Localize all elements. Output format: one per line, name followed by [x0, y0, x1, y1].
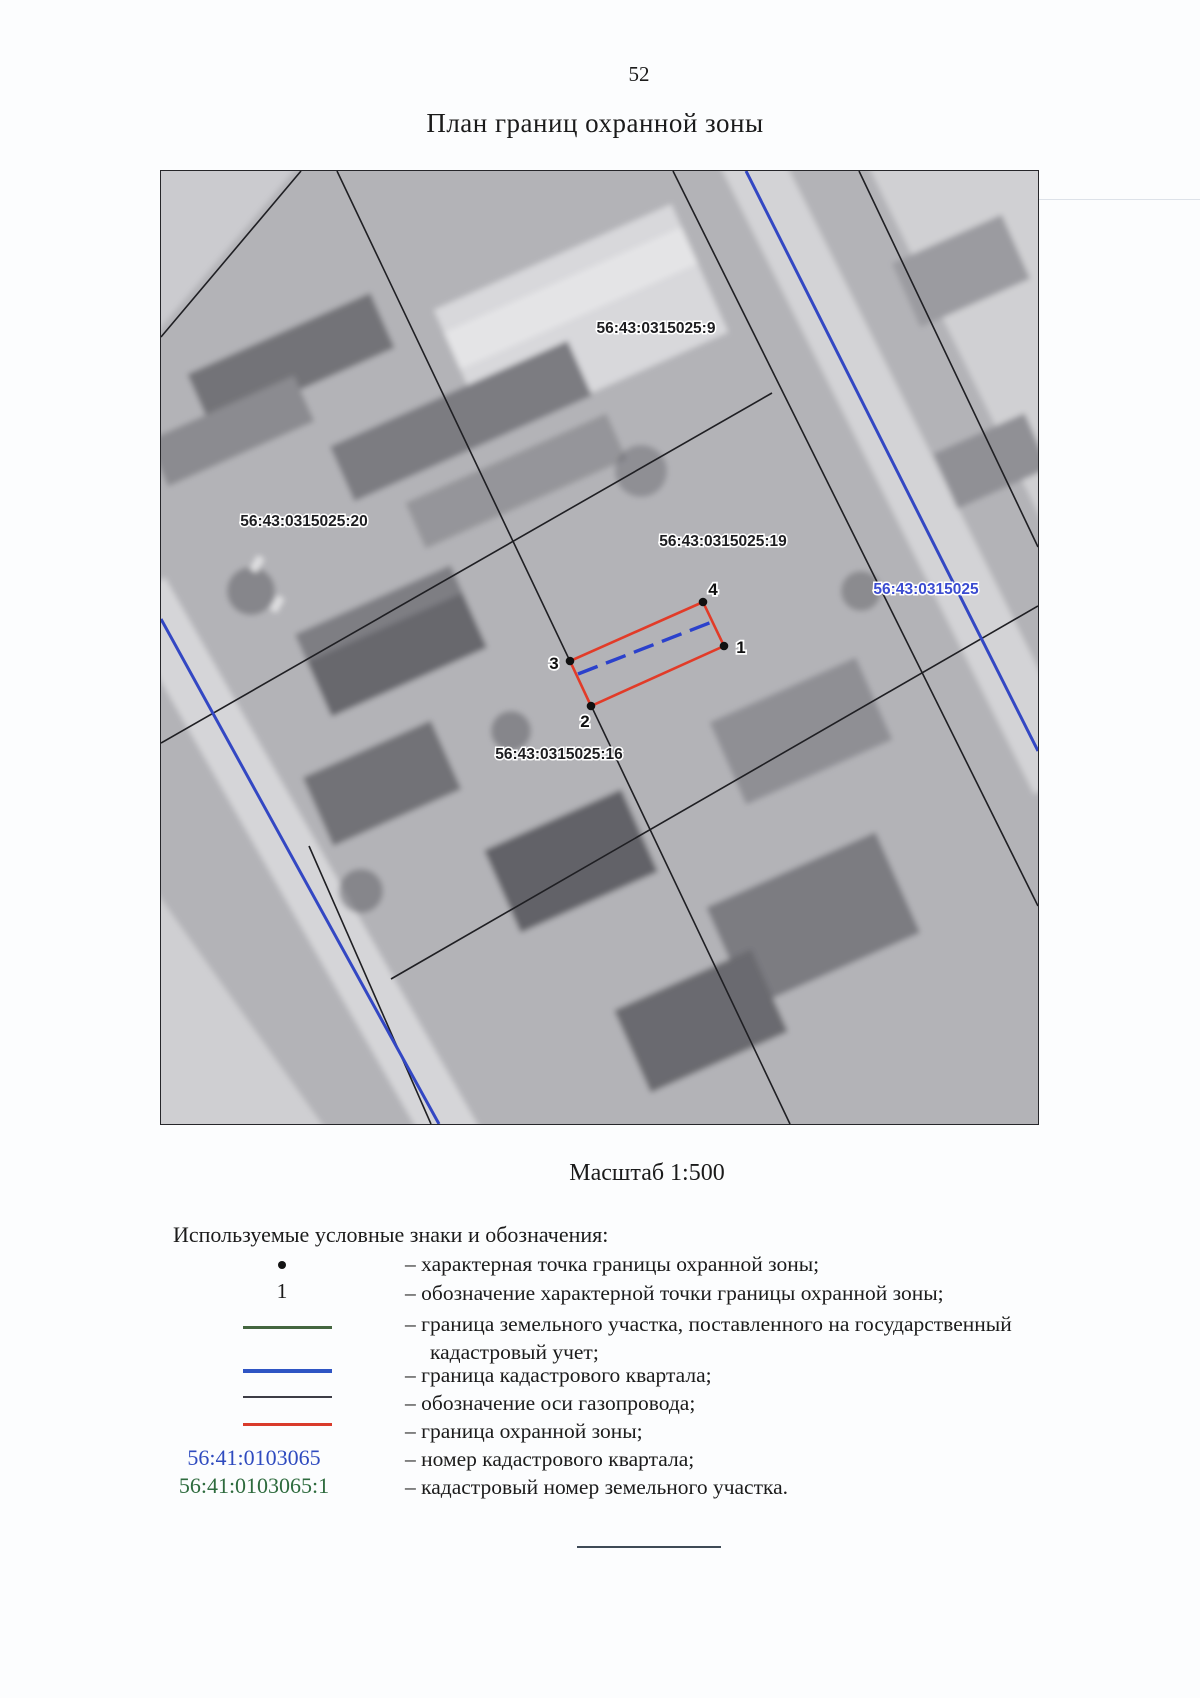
legend-symbol-protection-zone-line [243, 1423, 332, 1426]
legend-symbol-cadastral-quarter-number: 56:41:0103065 [168, 1445, 340, 1471]
legend-row-text: – обозначение характерной точки границы … [405, 1281, 944, 1306]
legend-row-text: – кадастровый номер земельного участка. [405, 1475, 788, 1500]
quarter-label: 56:43:0315025 [873, 581, 979, 598]
document-page: 52 План границ охранной зоны [0, 0, 1200, 1698]
legend-symbol-gas-pipeline-axis-line [243, 1396, 332, 1398]
legend-symbol-parcel-cadastral-number: 56:41:0103065:1 [168, 1473, 340, 1499]
page-faint-rule [1039, 199, 1200, 200]
parcel-label-9: 56:43:0315025:9 [597, 320, 716, 337]
boundary-point-1-dot [720, 642, 729, 651]
legend-symbol-cadastral-quarter-line [243, 1369, 332, 1373]
protection-zone-plan-map: 4 1 2 3 56:43:0315025:9 56:43:0315025:20… [160, 170, 1039, 1125]
legend-row-text: – граница кадастрового квартала; [405, 1363, 712, 1388]
legend-row-text: – обозначение оси газопровода; [405, 1391, 695, 1416]
legend-row-text: – характерная точка границы охранной зон… [405, 1252, 819, 1277]
legend-symbol-boundary-point-dot [278, 1261, 286, 1269]
legend-symbol-boundary-point-number: 1 [268, 1279, 296, 1304]
aerial-photo-plan: 4 1 2 3 56:43:0315025:9 56:43:0315025:20… [161, 171, 1038, 1124]
legend-row-text: – граница земельного участка, поставленн… [405, 1310, 1080, 1366]
boundary-point-4-dot [699, 598, 708, 607]
legend-symbol-land-parcel-line [243, 1326, 332, 1329]
legend-row-text: – граница охранной зоны; [405, 1419, 643, 1444]
legend-heading: Используемые условные знаки и обозначени… [173, 1222, 608, 1248]
parcel-label-20: 56:43:0315025:20 [240, 513, 368, 530]
document-title: План границ охранной зоны [0, 108, 1190, 139]
boundary-point-2-label: 2 [580, 712, 589, 731]
page-number: 52 [0, 62, 1200, 87]
boundary-point-1-label: 1 [736, 638, 745, 657]
boundary-point-3-label: 3 [549, 654, 558, 673]
boundary-point-4-label: 4 [708, 580, 718, 599]
boundary-point-3-dot [566, 657, 575, 666]
bottom-rule [577, 1546, 721, 1548]
boundary-point-2-dot [587, 702, 596, 711]
parcel-label-19: 56:43:0315025:19 [659, 533, 787, 550]
scale-caption: Масштаб 1:500 [94, 1160, 1200, 1187]
legend-row-text: – номер кадастрового квартала; [405, 1447, 694, 1472]
parcel-label-16: 56:43:0315025:16 [495, 746, 623, 763]
